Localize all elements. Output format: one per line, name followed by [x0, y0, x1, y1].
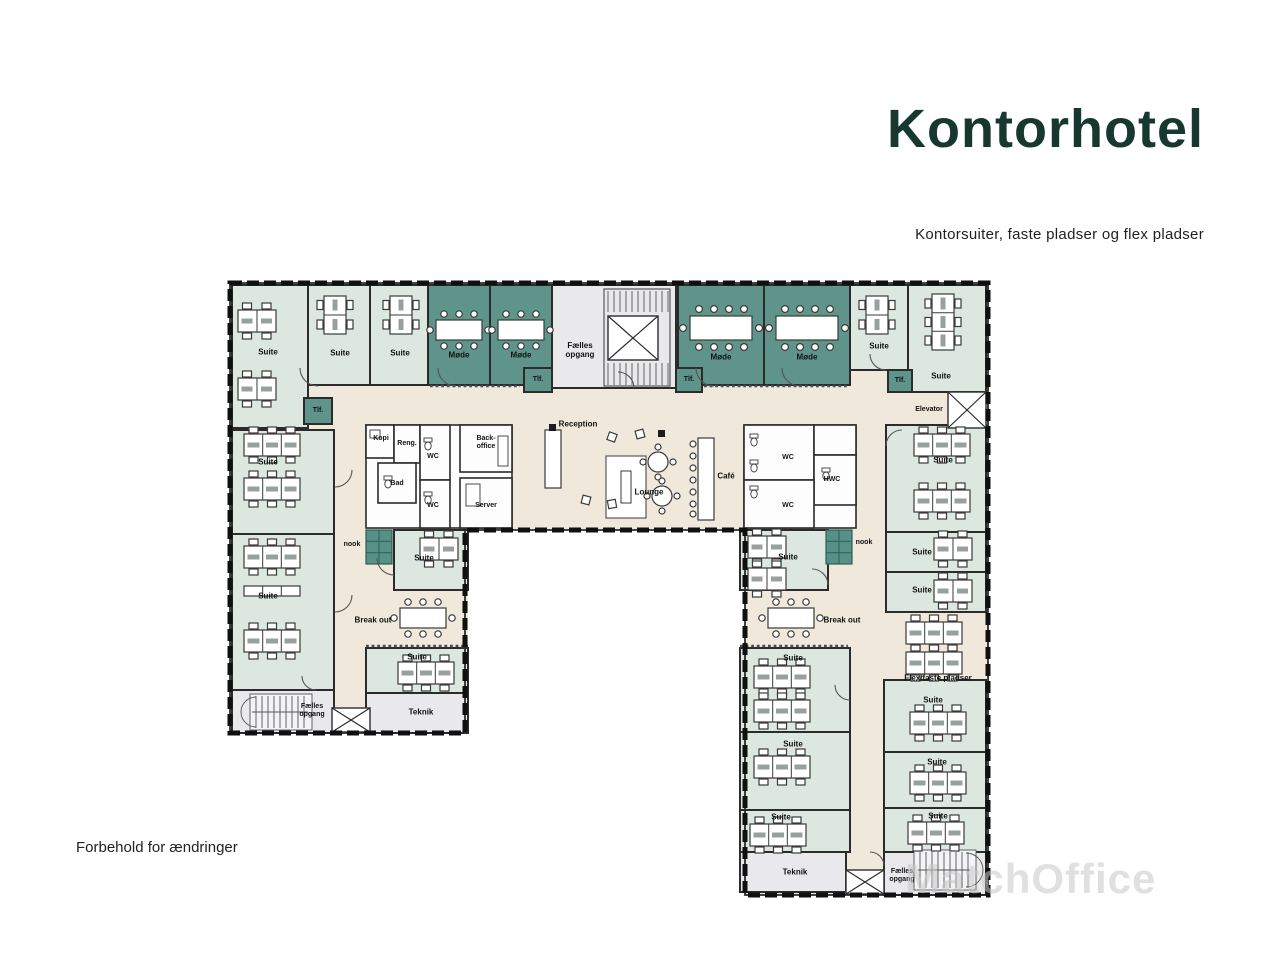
room-label-suite-west-2: Suite — [258, 591, 278, 600]
room-label-reception: Reception — [559, 419, 598, 428]
room-label-tlf-top-right: Tlf. — [895, 377, 906, 385]
room-label-suite-west-leg-2: Suite — [407, 652, 427, 661]
room-label-reng: Reng. — [397, 440, 416, 448]
room-label-bad: Bad — [390, 480, 403, 488]
room-label-suite-east-2: Suite — [912, 547, 932, 556]
room-label-tlf-stair-left: Tlf. — [533, 376, 544, 384]
room-label-suite-top-5: Suite — [931, 371, 951, 380]
room-label-teknik-west: Teknik — [409, 707, 434, 716]
floor-plan-drawing — [0, 0, 1280, 960]
room-label-server: Server — [475, 502, 497, 510]
room-label-suite-east-3: Suite — [912, 585, 932, 594]
room-label-suite-east-leg-1: Suite — [778, 552, 798, 561]
room-label-suite-top-4: Suite — [869, 341, 889, 350]
stairwell-southeast-detail — [914, 850, 983, 890]
room-label-suite-top-2: Suite — [330, 348, 350, 357]
room-label-teknik-east: Teknik — [783, 867, 808, 876]
room-label-suite-top-left: Suite — [258, 347, 278, 356]
room-label-stairwell-southwest: Fælles opgang — [295, 703, 329, 719]
room-label-mode-4: Møde — [797, 352, 818, 361]
room-label-lounge: Lounge — [635, 487, 664, 496]
room-label-breakout-east: Break out — [824, 615, 861, 624]
room-label-suite-east-leg-2: Suite — [783, 653, 803, 662]
nook-east-booth — [826, 530, 852, 564]
room-label-suite-west-1: Suite — [258, 457, 278, 466]
room-label-suite-east-5: Suite — [927, 757, 947, 766]
room-label-mode-1: Møde — [449, 350, 470, 359]
room-label-wc-west-2: WC — [427, 502, 439, 510]
room-label-wc-west-1: WC — [427, 453, 439, 461]
room-label-suite-east-6: Suite — [928, 811, 948, 820]
room-label-mode-2: Møde — [511, 350, 532, 359]
room-label-suite-west-leg-1: Suite — [414, 553, 434, 562]
floor-plan: Suite Tlf. Suite Suite Møde Møde Fælles … — [0, 0, 1280, 960]
room-label-elevator: Elevator — [915, 406, 943, 414]
room-label-kopi: Kopi — [373, 435, 389, 443]
room-label-suite-top-3: Suite — [390, 348, 410, 357]
room-label-tlf-stair-right: Tlf. — [684, 376, 695, 384]
room-label-wc-east-1: WC — [782, 454, 794, 462]
nook-west-booth — [366, 530, 392, 564]
room-label-cafe: Café — [717, 471, 734, 480]
room-label-mode-3: Møde — [711, 352, 732, 361]
room-label-stairwell-top: Fælles opgang — [560, 341, 600, 359]
room-label-suite-east-4: Suite — [923, 695, 943, 704]
room-label-flex-pladser: Flex/faste pladser — [904, 673, 972, 682]
room-label-suite-east-leg-4: Suite — [771, 812, 791, 821]
room-label-hwc: HWC — [824, 476, 841, 484]
room-label-nook-east: nook — [856, 539, 873, 547]
room-label-wc-east-2: WC — [782, 502, 794, 510]
room-label-back-office: Back-office — [469, 435, 503, 451]
room-label-breakout-west: Break out — [355, 615, 392, 624]
room-label-nook-west: nook — [344, 541, 361, 549]
room-label-tlf-top-left: Tlf. — [313, 407, 324, 415]
room-label-suite-east-leg-3: Suite — [783, 739, 803, 748]
room-label-suite-east-1: Suite — [933, 455, 953, 464]
page: { "header": { "title": "Kontorhotel", "s… — [0, 0, 1280, 960]
room-label-stairwell-southeast: Fælles opgang — [885, 868, 919, 884]
